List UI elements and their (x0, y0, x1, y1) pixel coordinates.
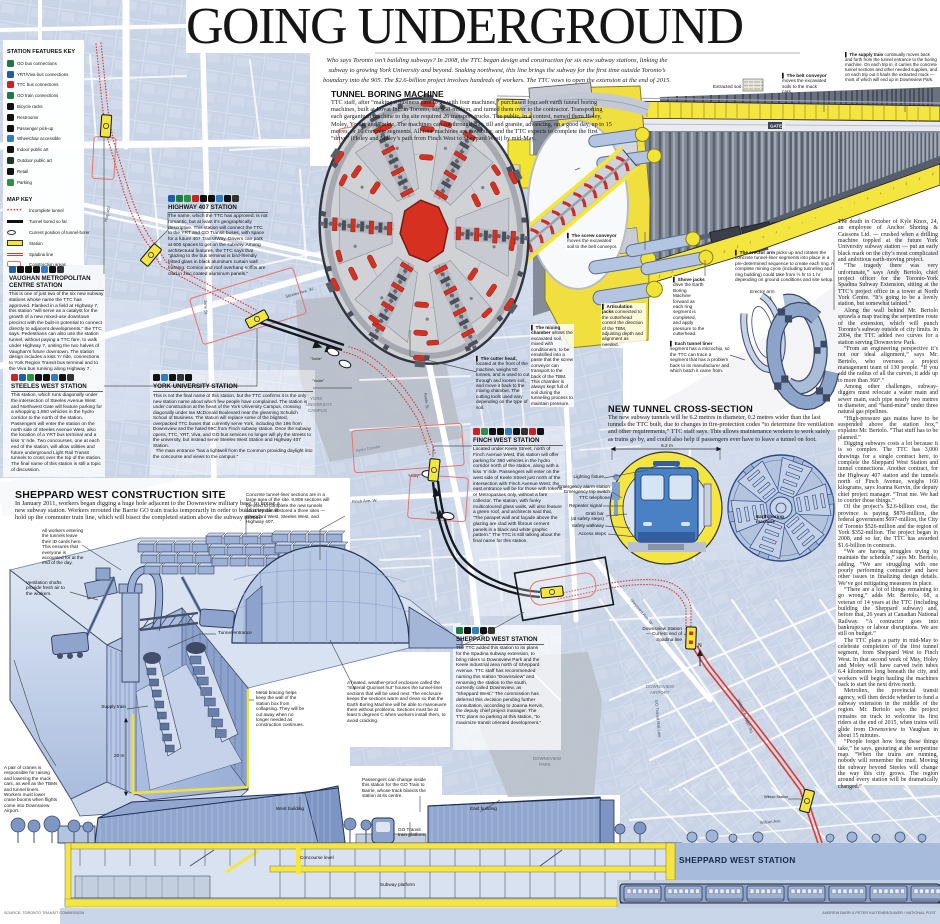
svg-text:DOWNSVIEW: DOWNSVIEW (646, 684, 675, 689)
svg-text:Wilson Station: Wilson Station (764, 795, 788, 799)
svg-text:PARK: PARK (539, 762, 551, 767)
svg-text:“Holey”: “Holey” (408, 474, 420, 478)
svg-text:Jane St.: Jane St. (203, 300, 209, 316)
svg-text:“Moley”: “Moley” (430, 511, 443, 515)
svg-text:“Torkie”: “Torkie” (310, 357, 323, 361)
svg-text:AIRPORT: AIRPORT (650, 690, 670, 695)
svg-text:DOWNSVIEW: DOWNSVIEW (533, 756, 562, 761)
svg-text:“Yorkie”: “Yorkie” (312, 379, 325, 383)
svg-text:N: N (698, 643, 702, 649)
svg-text:GATES: GATES (770, 124, 785, 129)
